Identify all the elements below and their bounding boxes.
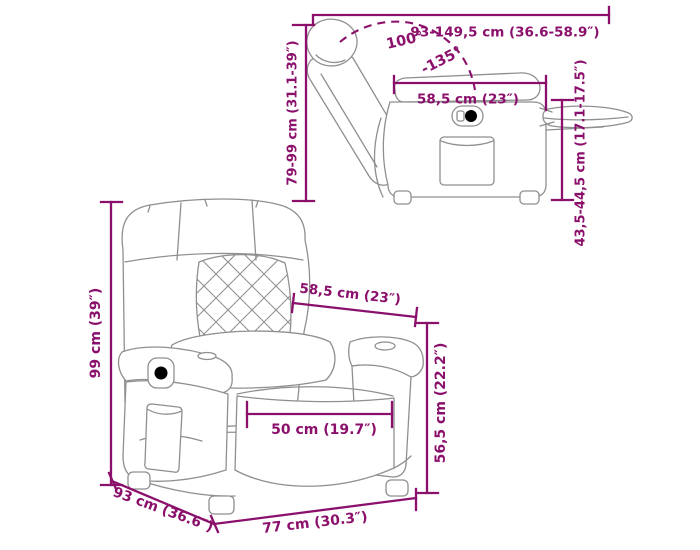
diagram-canvas — [0, 0, 700, 550]
label-footrest-height: 43,5-44,5 cm (17.1-17.5″) — [575, 59, 588, 246]
side-pocket — [440, 137, 494, 185]
label-seat-depth: 58,5 cm (23″) — [417, 93, 519, 107]
left-cup-holder — [198, 353, 216, 360]
front-pocket — [145, 404, 182, 472]
dim-front-height — [101, 202, 122, 485]
label-front-seat-front-width: 50 cm (19.7″) — [271, 423, 377, 437]
side-recline-handle-icon — [452, 106, 483, 126]
front-recline-lever-icon — [148, 358, 174, 388]
label-extended-length: 93-149,5 cm (36.6-58.9″) — [410, 26, 599, 40]
label-front-seat-height: 56,5 cm (22.2″) — [434, 343, 448, 464]
label-side-height: 79-99 cm (31.1-39″) — [287, 40, 300, 185]
right-cup-holder — [375, 342, 395, 350]
label-front-height: 99 cm (39″) — [89, 288, 103, 379]
side-headrest-pillow — [307, 19, 357, 66]
recliner-dimension-diagram: 93-149,5 cm (36.6-58.9″) 79-99 cm (31.1-… — [0, 0, 700, 550]
front-view-chair-drawing — [119, 199, 424, 514]
dim-extended-length — [313, 7, 609, 25]
